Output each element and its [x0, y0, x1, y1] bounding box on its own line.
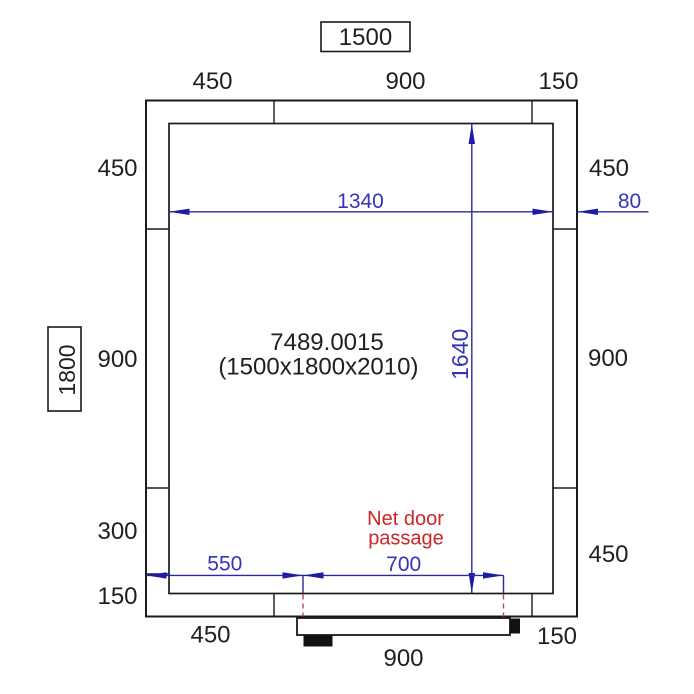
svg-text:450: 450: [192, 68, 232, 95]
svg-text:450: 450: [97, 155, 137, 182]
svg-text:1640: 1640: [447, 329, 473, 380]
svg-text:150: 150: [537, 623, 577, 650]
svg-text:700: 700: [386, 553, 421, 576]
svg-text:300: 300: [97, 518, 137, 545]
svg-text:900: 900: [383, 645, 423, 672]
svg-text:550: 550: [207, 553, 242, 576]
svg-text:900: 900: [385, 68, 425, 95]
svg-text:1800: 1800: [54, 344, 80, 395]
svg-text:150: 150: [538, 68, 578, 95]
svg-text:450: 450: [588, 541, 628, 568]
svg-text:900: 900: [97, 346, 137, 373]
svg-text:7489.0015: 7489.0015: [270, 329, 383, 356]
svg-text:450: 450: [589, 155, 629, 182]
svg-text:passage: passage: [368, 528, 444, 550]
svg-text:(1500x1800x2010): (1500x1800x2010): [218, 354, 418, 381]
svg-text:450: 450: [190, 622, 230, 649]
svg-text:1500: 1500: [339, 24, 392, 51]
svg-text:1340: 1340: [337, 190, 384, 213]
svg-text:900: 900: [588, 345, 628, 372]
svg-text:80: 80: [618, 190, 641, 213]
svg-text:150: 150: [97, 583, 137, 610]
